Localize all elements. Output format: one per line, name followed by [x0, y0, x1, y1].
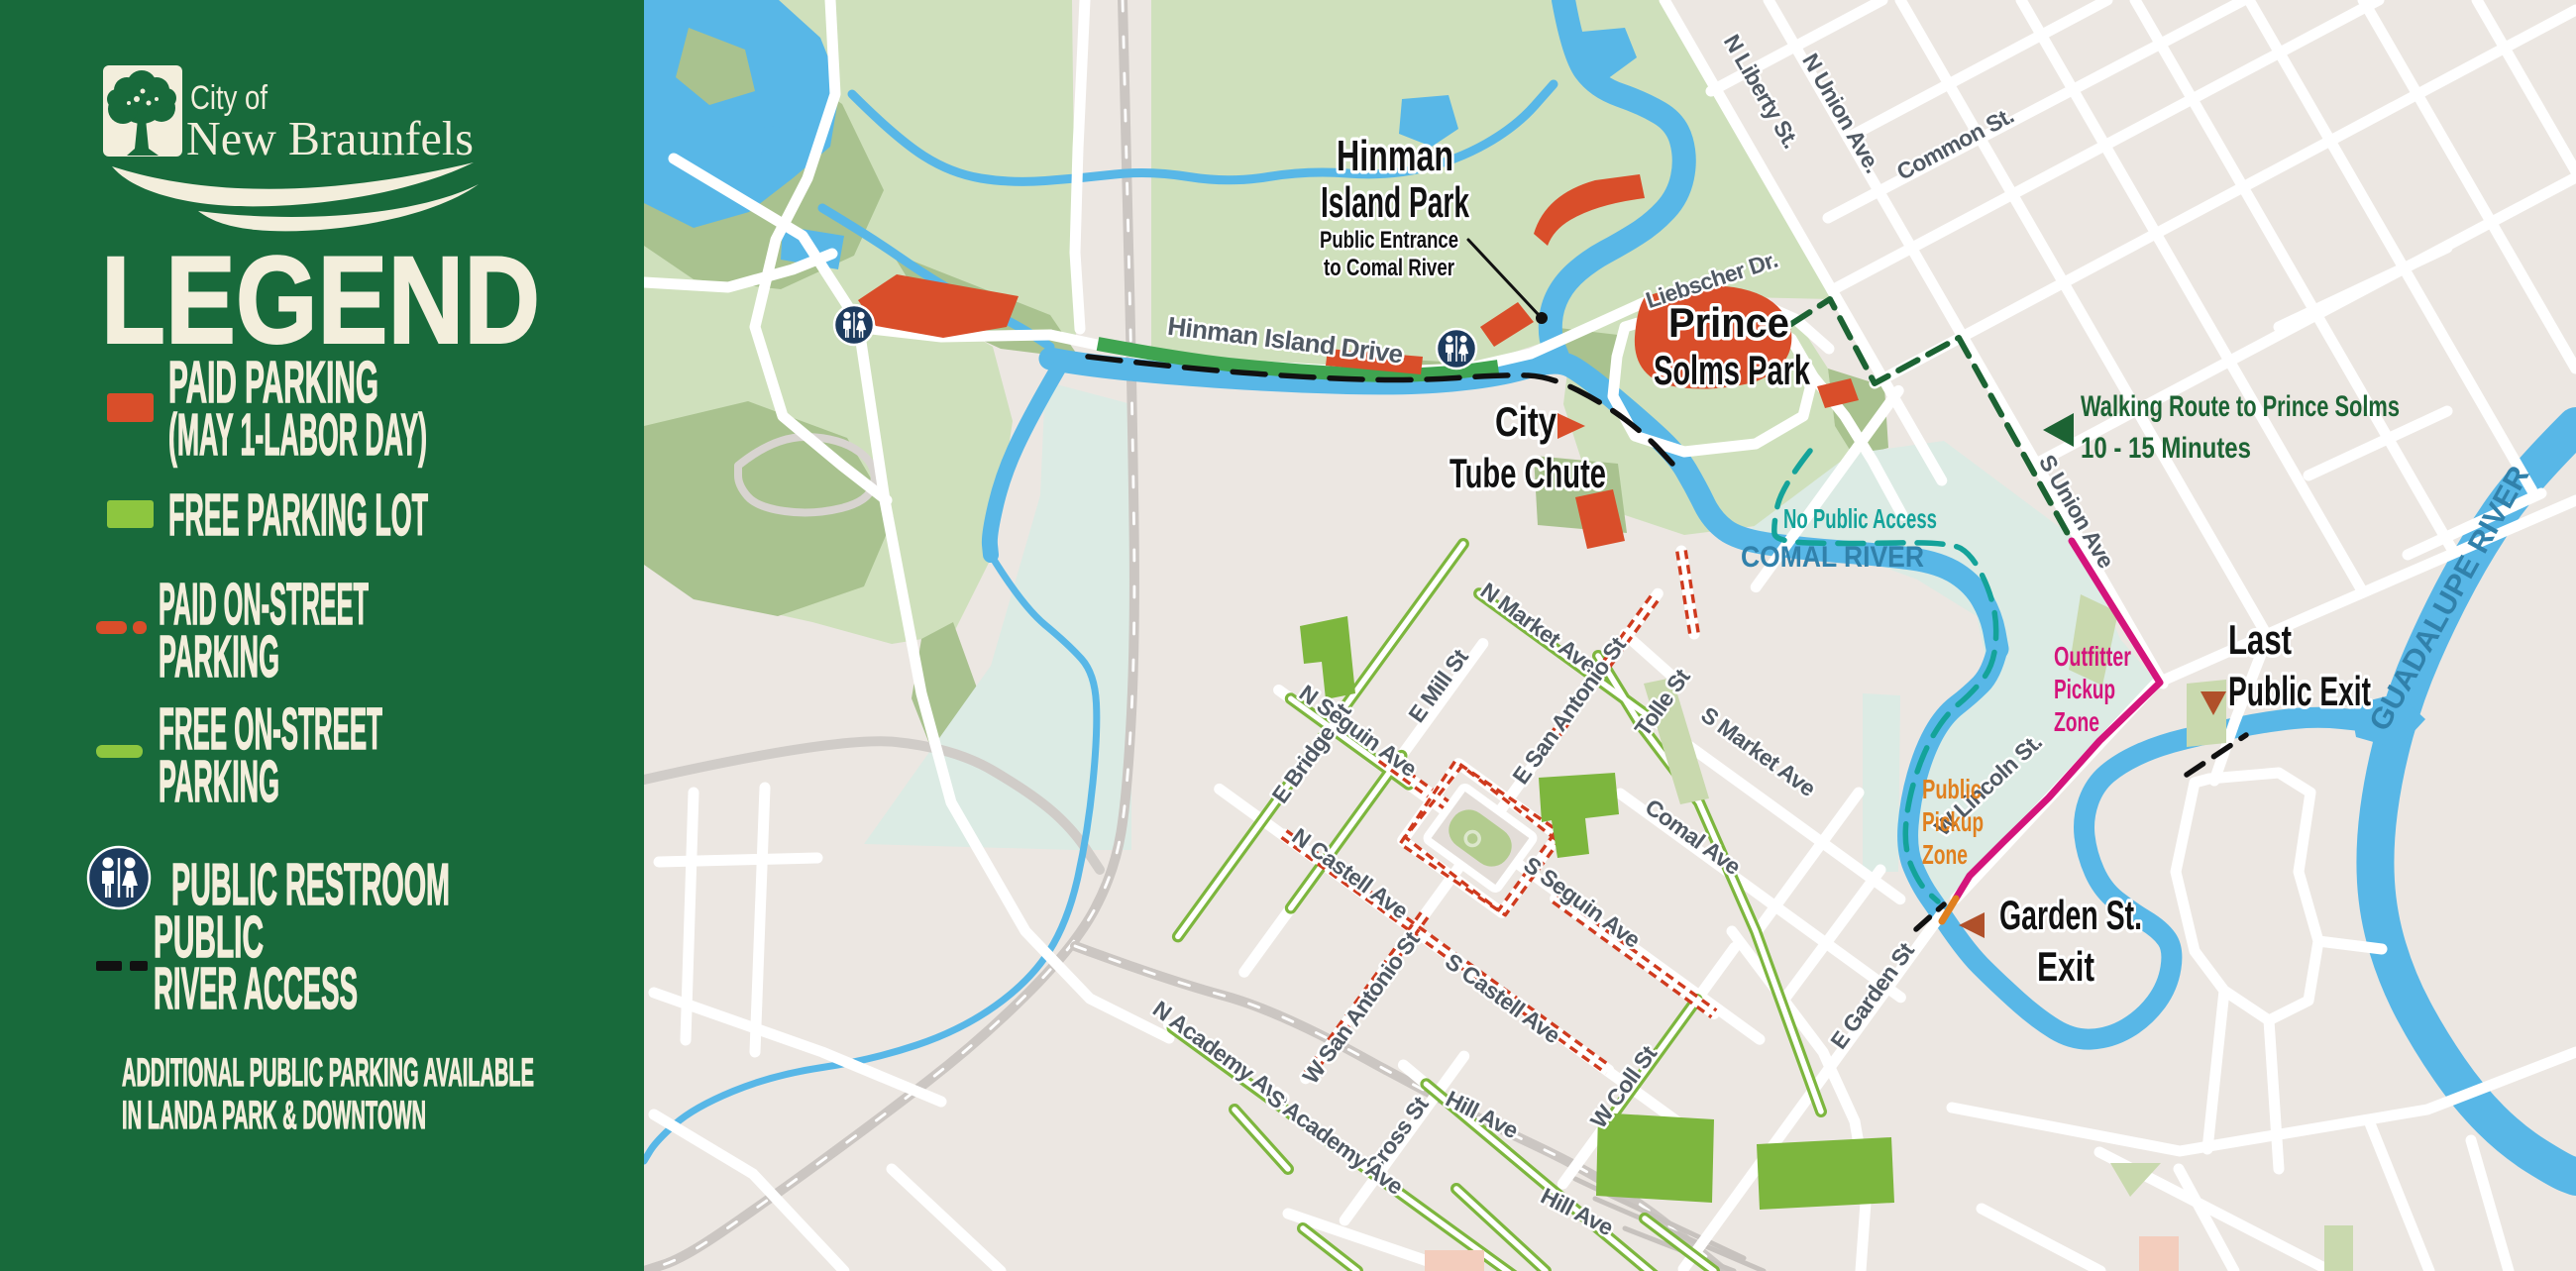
svg-text:IN LANDA PARK & DOWNTOWN: IN LANDA PARK & DOWNTOWN [122, 1094, 426, 1137]
svg-text:PARKING: PARKING [159, 624, 279, 689]
svg-text:PARKING: PARKING [159, 749, 279, 814]
svg-text:ADDITIONAL PUBLIC PARKING AVAI: ADDITIONAL PUBLIC PARKING AVAILABLE [122, 1051, 534, 1095]
svg-text:City: City [1495, 398, 1556, 445]
svg-text:Zone: Zone [1922, 839, 1968, 870]
svg-text:No Public Access: No Public Access [1783, 503, 1937, 534]
svg-text:RIVER ACCESS: RIVER ACCESS [154, 956, 358, 1021]
svg-text:Last: Last [2228, 616, 2292, 663]
svg-text:Island Park: Island Park [1321, 178, 1469, 227]
svg-text:Tube Chute: Tube Chute [1449, 450, 1606, 496]
svg-text:Exit: Exit [2037, 943, 2094, 990]
svg-text:New Braunfels: New Braunfels [186, 111, 474, 165]
svg-text:Pickup: Pickup [2054, 674, 2115, 704]
svg-text:Public Exit: Public Exit [2228, 668, 2371, 714]
svg-text:Outfitter: Outfitter [2054, 641, 2131, 672]
svg-text:Solms Park: Solms Park [1654, 347, 1810, 393]
svg-text:Hinman: Hinman [1337, 132, 1453, 180]
svg-text:Prince: Prince [1668, 299, 1789, 346]
svg-text:FREE PARKING LOT: FREE PARKING LOT [168, 482, 428, 548]
svg-text:to Comal River: to Comal River [1324, 255, 1454, 281]
svg-text:Zone: Zone [2054, 706, 2099, 737]
svg-text:COMAL RIVER: COMAL RIVER [1741, 541, 1924, 574]
svg-text:(MAY 1-LABOR DAY): (MAY 1-LABOR DAY) [168, 402, 427, 468]
svg-text:Public Entrance: Public Entrance [1320, 227, 1458, 254]
svg-text:Public: Public [1922, 774, 1982, 804]
svg-text:Garden St.: Garden St. [1999, 892, 2142, 938]
svg-text:Pickup: Pickup [1922, 806, 1984, 837]
svg-text:10 - 15 Minutes: 10 - 15 Minutes [2081, 432, 2251, 465]
svg-text:Walking Route to Prince Solms: Walking Route to Prince Solms [2081, 390, 2400, 423]
